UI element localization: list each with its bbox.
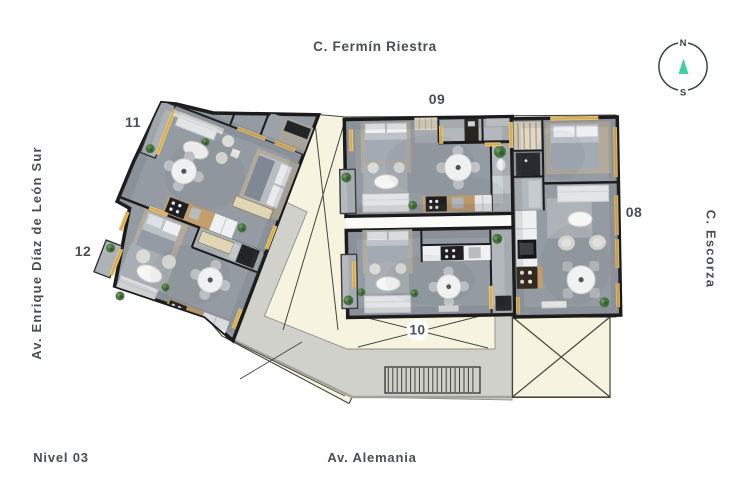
svg-text:Nivel 03: Nivel 03	[33, 450, 89, 465]
svg-text:09: 09	[429, 91, 446, 107]
svg-text:Av. Alemania: Av. Alemania	[327, 450, 416, 465]
svg-text:11: 11	[125, 114, 141, 130]
svg-text:N: N	[680, 38, 687, 49]
svg-text:C. Escorza: C. Escorza	[704, 210, 719, 288]
svg-text:Av. Enrique Díaz de León Sur: Av. Enrique Díaz de León Sur	[29, 146, 44, 359]
svg-text:S: S	[680, 88, 686, 99]
svg-text:12: 12	[75, 243, 92, 259]
svg-text:10: 10	[409, 323, 425, 338]
svg-text:08: 08	[626, 204, 643, 220]
svg-text:C. Fermín Riestra: C. Fermín Riestra	[313, 39, 437, 54]
